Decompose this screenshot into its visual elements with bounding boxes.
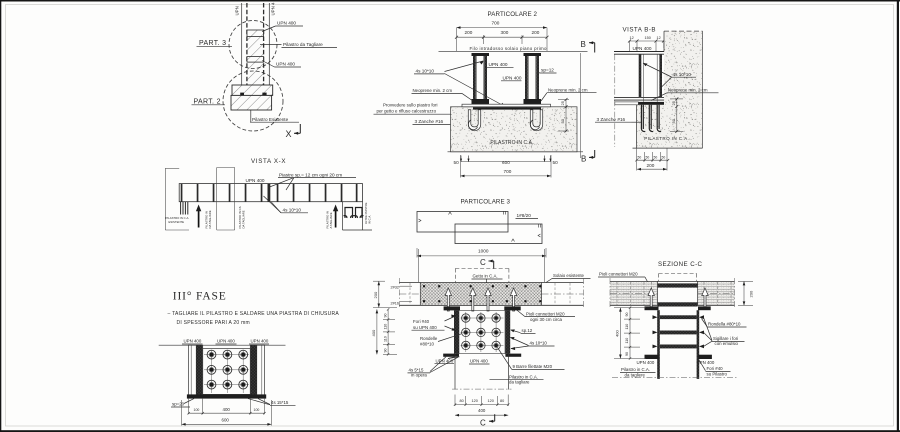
svg-text:Provvedere sullo piastro fori: Provvedere sullo piastro fori	[383, 103, 437, 108]
svg-text:200: 200	[373, 291, 378, 298]
svg-text:12: 12	[657, 36, 661, 40]
svg-text:4s 10*10: 4s 10*10	[530, 341, 548, 346]
svg-text:50: 50	[671, 118, 676, 123]
svg-text:Pioli connettori M20: Pioli connettori M20	[599, 272, 638, 277]
svg-text:200: 200	[532, 30, 540, 35]
svg-text:con emulsio: con emulsio	[715, 341, 739, 346]
svg-text:PILASTRO IN C.A.: PILASTRO IN C.A.	[644, 136, 689, 141]
svg-text:Pioli connettori M20: Pioli connettori M20	[526, 311, 565, 316]
svg-text:PARTICOLARE 2: PARTICOLARE 2	[488, 11, 538, 18]
svg-text:Rondella #80*10: Rondella #80*10	[708, 322, 741, 327]
svg-text:UPN 400: UPN 400	[276, 62, 295, 67]
svg-text:B: B	[581, 40, 586, 49]
svg-text:Neoprene min. 2 cm: Neoprene min. 2 cm	[668, 88, 708, 93]
svg-text:UPN 400: UPN 400	[246, 178, 265, 183]
svg-text:1#8/20: 1#8/20	[517, 213, 532, 218]
svg-text:UPN 400: UPN 400	[503, 76, 522, 81]
svg-text:UPN 400: UPN 400	[633, 46, 652, 51]
svg-text:Piastre sp.= 12 cm ogni 20 cm: Piastre sp.= 12 cm ogni 20 cm	[279, 172, 342, 177]
svg-text:Rondelle: Rondelle	[420, 336, 438, 341]
svg-text:9 Barre filettate M20: 9 Barre filettate M20	[513, 364, 553, 369]
svg-text:Neoprene min. 2 cm: Neoprene min. 2 cm	[413, 88, 453, 93]
svg-text:VISTA B-B: VISTA B-B	[623, 27, 656, 34]
svg-text:III° FASE: III° FASE	[173, 291, 226, 303]
svg-text:Filo intradosso solaio piano p: Filo intradosso solaio piano primo	[470, 46, 548, 51]
svg-text:120: 120	[488, 399, 494, 403]
svg-text:PILASTRO IN C.A.: PILASTRO IN C.A.	[490, 140, 533, 146]
svg-text:400: 400	[615, 330, 620, 337]
svg-text:#80*10: #80*10	[420, 342, 434, 347]
svg-text:2#32: 2#32	[391, 286, 399, 290]
svg-text:80: 80	[500, 399, 504, 403]
svg-text:PART. 3: PART. 3	[199, 40, 226, 47]
svg-text:PARTICOLARE 3: PARTICOLARE 3	[461, 198, 511, 205]
svg-text:90: 90	[383, 314, 387, 318]
svg-text:600: 600	[502, 160, 510, 165]
svg-text:A TAGLIARE: A TAGLIARE	[329, 212, 333, 228]
svg-text:Pilastro in C.A.: Pilastro in C.A.	[621, 367, 650, 372]
svg-text:IN C.A.: IN C.A.	[368, 215, 372, 224]
svg-text:2#16: 2#16	[391, 302, 399, 306]
svg-text:per getto e rifluso calcestruz: per getto e rifluso calcestruzzo	[377, 109, 437, 114]
svg-text:25: 25	[671, 100, 676, 105]
svg-text:in opera: in opera	[411, 373, 427, 378]
svg-text:90: 90	[625, 313, 629, 317]
svg-text:DA TAGLIARE: DA TAGLIARE	[242, 210, 246, 228]
svg-text:Neoprene min. 2 cm: Neoprene min. 2 cm	[548, 88, 588, 93]
svg-text:200: 200	[465, 30, 473, 35]
svg-text:ogni 30 cm circa: ogni 30 cm circa	[530, 317, 563, 322]
svg-text:50: 50	[646, 155, 650, 159]
svg-text:B: B	[581, 155, 586, 164]
svg-text:UPN 400: UPN 400	[470, 359, 488, 364]
svg-text:– TAGLIARE IL PILASTRO E SALD: – TAGLIARE IL PILASTRO E SALDARE UNA PIA…	[168, 311, 340, 317]
svg-text:400: 400	[371, 329, 376, 336]
svg-text:90: 90	[383, 349, 387, 353]
svg-text:da tagliere: da tagliere	[625, 373, 646, 378]
svg-text:120: 120	[472, 399, 478, 403]
svg-text:da tagliare: da tagliare	[509, 379, 530, 384]
svg-text:300: 300	[501, 30, 509, 35]
svg-text:12: 12	[630, 36, 634, 40]
svg-text:Fori #40: Fori #40	[413, 319, 430, 324]
svg-text:C: C	[480, 258, 486, 267]
svg-text:100: 100	[194, 408, 200, 412]
svg-text:SEZIONE C-C: SEZIONE C-C	[658, 261, 703, 268]
svg-text:700: 700	[504, 169, 512, 174]
svg-text:4s 10*10: 4s 10*10	[283, 208, 302, 213]
svg-text:100: 100	[254, 408, 260, 412]
svg-text:150: 150	[645, 36, 651, 40]
svg-text:400: 400	[478, 408, 486, 413]
svg-text:Solaio esistente: Solaio esistente	[553, 273, 585, 278]
svg-text:UPN 400: UPN 400	[184, 339, 202, 344]
svg-text:X: X	[286, 129, 292, 139]
svg-text:PART. 2: PART. 2	[194, 98, 221, 105]
svg-text:su Pilastro: su Pilastro	[707, 371, 728, 376]
svg-text:UPN: UPN	[235, 6, 240, 15]
svg-text:UPN 400: UPN 400	[489, 62, 508, 67]
svg-text:400: 400	[223, 407, 231, 412]
svg-text:50: 50	[638, 155, 642, 159]
svg-text:80: 80	[460, 399, 464, 403]
svg-text:4s 10*10: 4s 10*10	[673, 72, 692, 77]
svg-text:UPN 400: UPN 400	[251, 339, 269, 344]
svg-text:Pilastro da Tagliare: Pilastro da Tagliare	[283, 42, 323, 47]
svg-text:1000: 1000	[478, 248, 489, 253]
svg-text:110: 110	[383, 324, 387, 330]
svg-text:90: 90	[625, 352, 629, 356]
svg-text:UPN 400: UPN 400	[217, 339, 235, 344]
svg-text:110: 110	[625, 338, 629, 344]
svg-text:50: 50	[553, 160, 559, 165]
svg-text:3 Zanche #16: 3 Zanche #16	[597, 117, 626, 122]
svg-text:UPN 4: UPN 4	[271, 2, 276, 15]
svg-text:200: 200	[748, 290, 753, 297]
svg-text:50: 50	[454, 160, 460, 165]
svg-text:50: 50	[654, 155, 658, 159]
svg-text:Pilastro Esistente: Pilastro Esistente	[252, 117, 289, 122]
svg-text:DI SPESSORE PARI A 20 mm: DI SPESSORE PARI A 20 mm	[177, 320, 250, 326]
svg-text:sp.12: sp.12	[522, 328, 533, 333]
svg-text:VISTA X-X: VISTA X-X	[251, 158, 286, 165]
svg-text:700: 700	[492, 21, 500, 26]
svg-text:UPN 400: UPN 400	[277, 21, 296, 26]
svg-text:110: 110	[383, 336, 387, 342]
svg-text:C: C	[480, 419, 486, 428]
svg-text:50: 50	[560, 118, 565, 123]
svg-text:4s 15*15: 4s 15*15	[271, 400, 289, 405]
svg-text:Getto in C.A.: Getto in C.A.	[473, 274, 498, 279]
svg-text:sp=20: sp=20	[172, 402, 185, 407]
svg-text:3 Zanche #16: 3 Zanche #16	[415, 119, 444, 124]
svg-text:UPN 400: UPN 400	[637, 360, 655, 365]
svg-text:50: 50	[662, 155, 666, 159]
svg-text:ESISTENTE: ESISTENTE	[169, 220, 185, 224]
svg-text:110: 110	[625, 324, 629, 330]
svg-text:25: 25	[560, 100, 565, 105]
svg-text:sp=12: sp=12	[541, 68, 554, 73]
svg-text:DA TAGLIARE: DA TAGLIARE	[208, 210, 212, 228]
svg-text:200: 200	[647, 163, 655, 168]
svg-text:600: 600	[222, 417, 230, 422]
svg-text:4s 10*10: 4s 10*10	[416, 69, 435, 74]
svg-text:su UPN 400: su UPN 400	[413, 325, 437, 330]
